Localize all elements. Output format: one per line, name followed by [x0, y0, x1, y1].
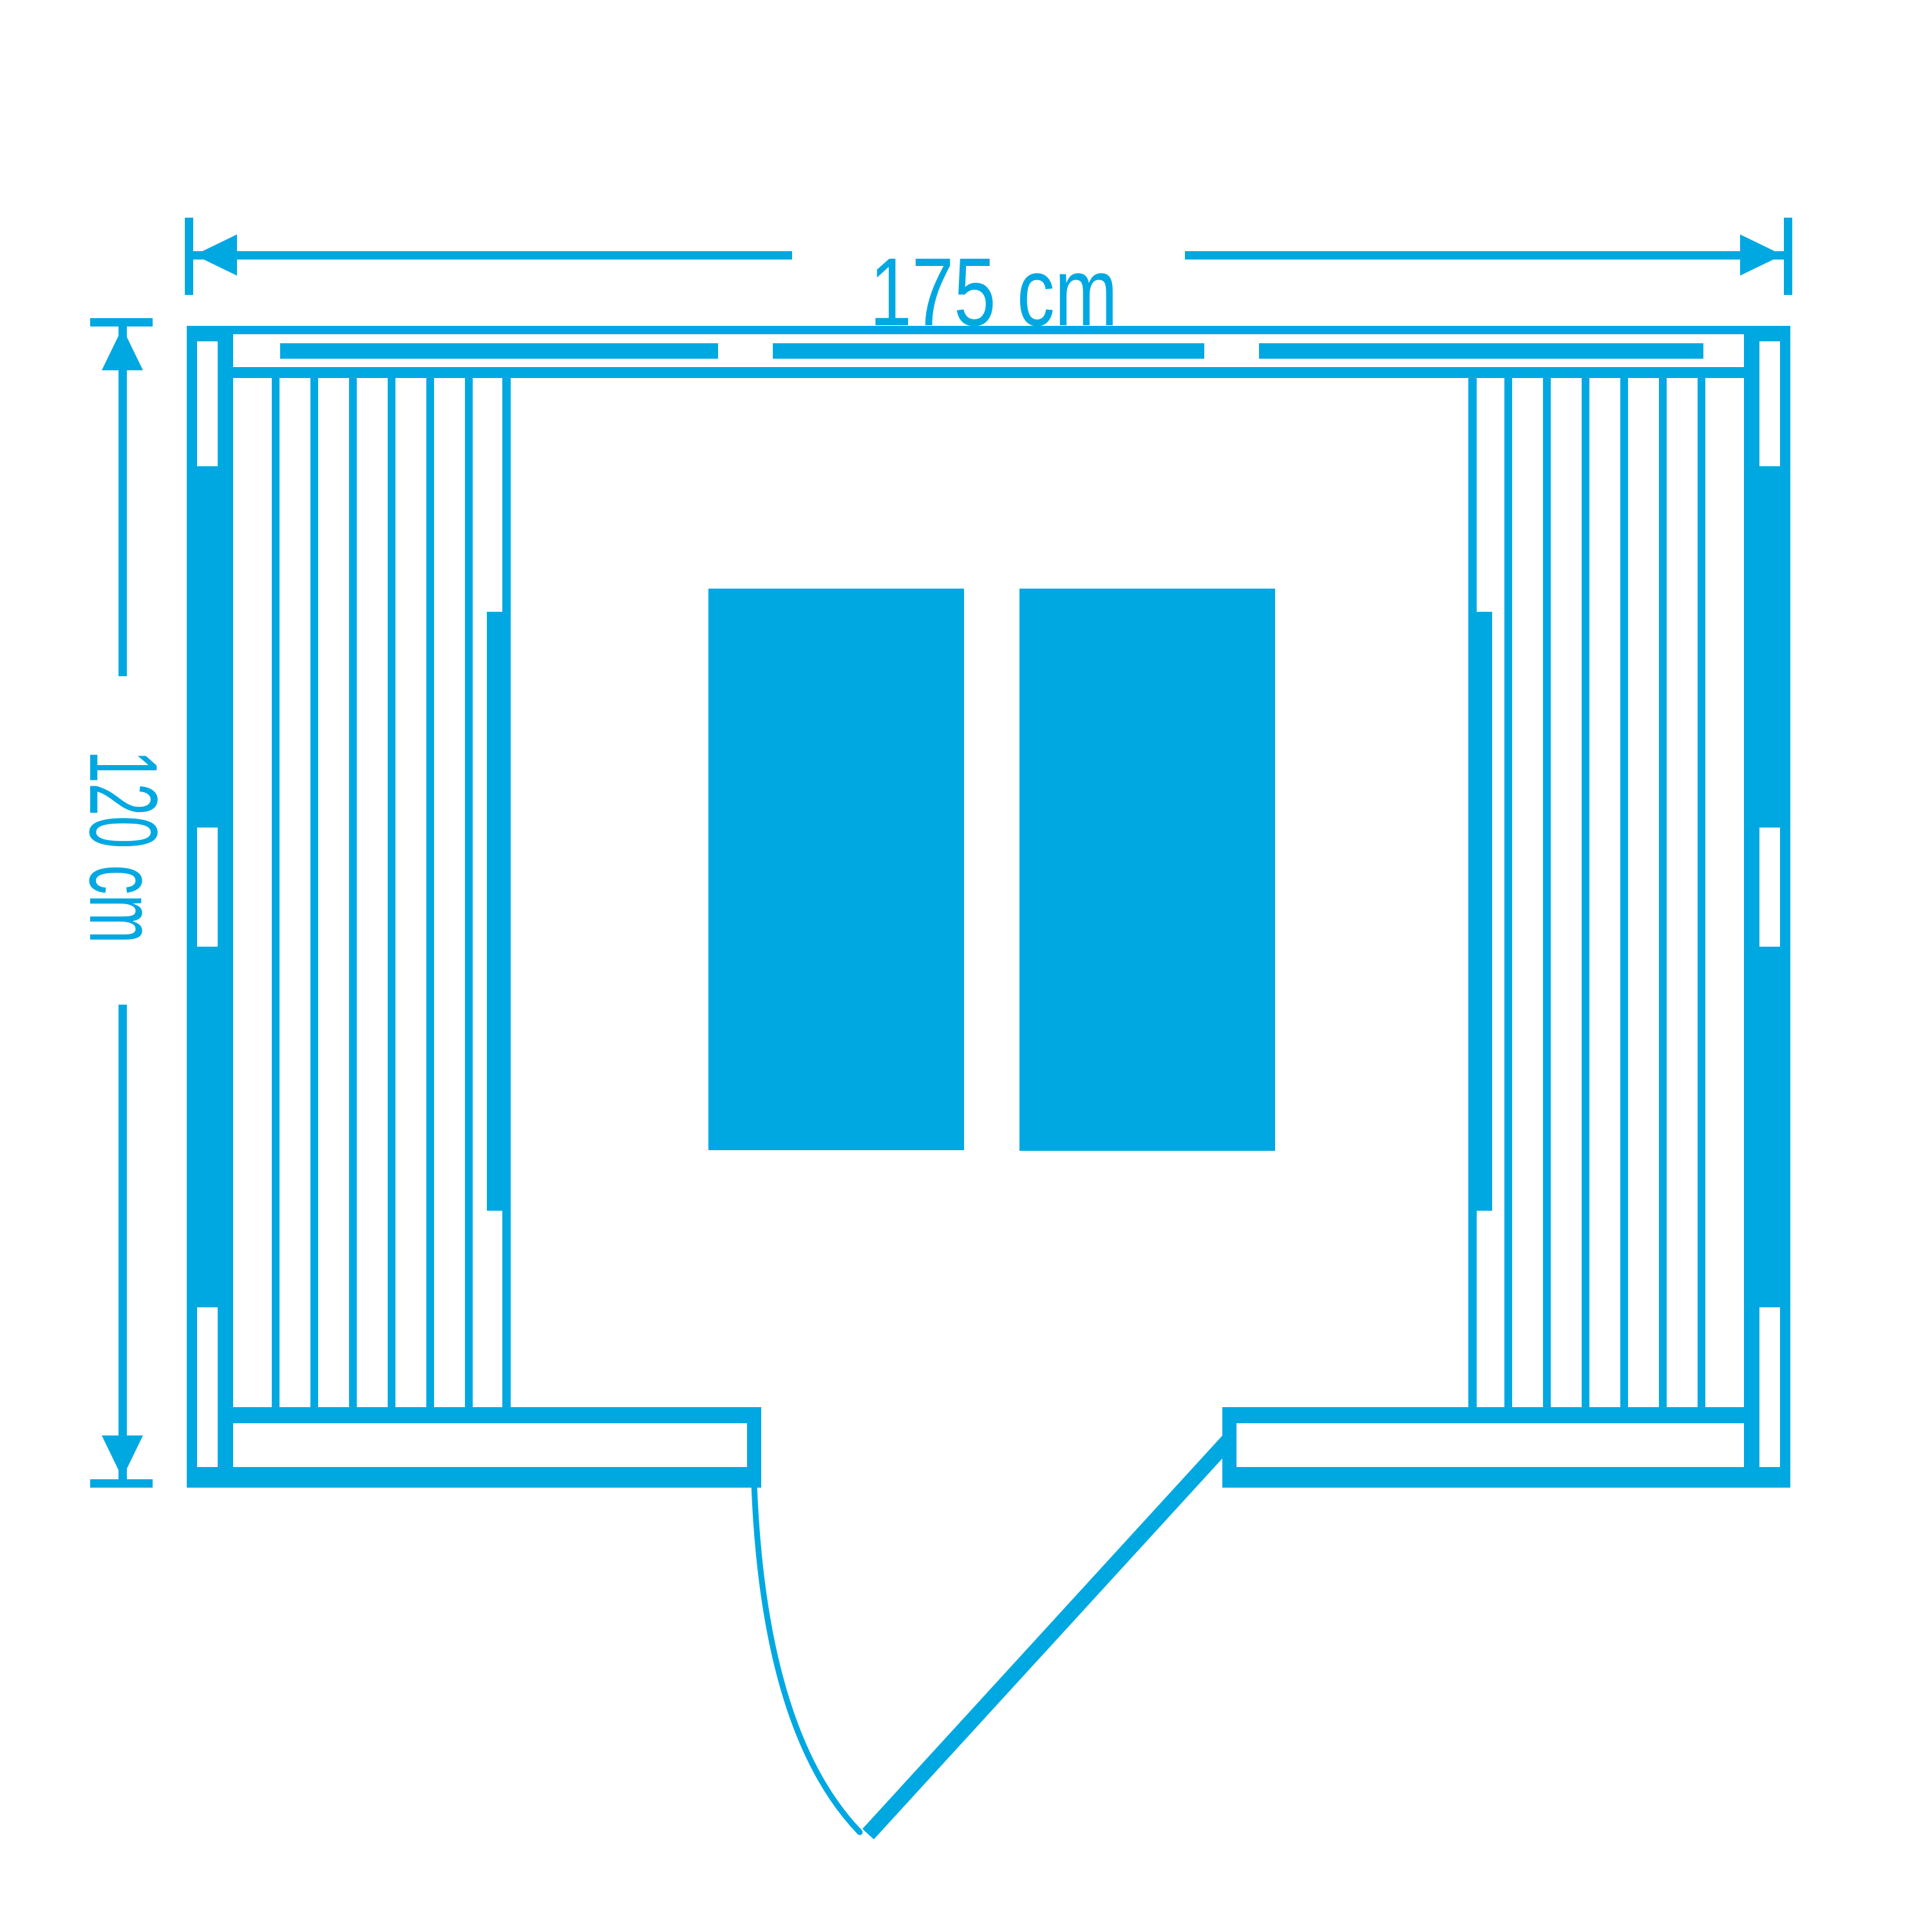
- arrow-up-icon: [102, 328, 143, 370]
- bottom-wall-inner-line-left: [233, 1407, 747, 1423]
- right-heater-panel: [1468, 378, 1705, 1407]
- arrow-left-icon: [194, 234, 237, 276]
- arrow-right-icon: [1740, 234, 1783, 276]
- left-panel-stripe: [426, 378, 434, 1407]
- right-bench-cushion: [1019, 589, 1275, 1151]
- left-panel-front-edge: [502, 378, 511, 1407]
- left-panel-stripe: [272, 378, 279, 1407]
- top-wall-panel-left: [280, 343, 718, 359]
- right-wall-joint-slot-top: [1759, 341, 1780, 466]
- top-wall-inner-line: [218, 367, 1765, 378]
- sauna-floor-plan: 175 cm 120 cm: [0, 0, 1932, 1932]
- sauna-floor-plan-page: 175 cm 120 cm: [0, 0, 1932, 1932]
- right-panel-front-edge: [1468, 378, 1477, 1407]
- depth-dim-line-top-segment: [118, 327, 127, 676]
- left-wall-joint-slot-middle: [197, 828, 218, 947]
- outer-wall-bottom-right-segment: [1222, 1467, 1790, 1488]
- right-wall-joint-slot-bottom: [1759, 1307, 1780, 1467]
- arrow-down-icon: [102, 1435, 143, 1478]
- right-bench-front-edge: [1477, 612, 1492, 1211]
- left-panel-stripe: [349, 378, 357, 1407]
- left-bench-cushion: [708, 589, 964, 1150]
- top-wall-panel-right: [1259, 343, 1703, 359]
- bench-cushions: [708, 589, 1275, 1151]
- door-jamb-left: [747, 1407, 761, 1488]
- right-wall-joint-slot-middle: [1759, 828, 1780, 947]
- door: [754, 1439, 1229, 1834]
- door-leaf: [868, 1439, 1229, 1834]
- depth-dim-tick-top: [90, 318, 153, 327]
- left-panel-stripe: [465, 378, 473, 1407]
- left-wall: [195, 334, 233, 1472]
- right-panel-stripe: [1582, 378, 1589, 1407]
- left-panel-stripe: [310, 378, 318, 1407]
- outer-wall-left-edge: [187, 326, 195, 1488]
- depth-dimension-label: 120 cm: [70, 750, 178, 943]
- left-bench-front-edge: [487, 612, 502, 1211]
- right-panel-stripe: [1543, 378, 1551, 1407]
- width-dim-tick-left: [185, 218, 193, 295]
- width-dim-line-right-segment: [1185, 251, 1784, 260]
- right-panel-stripe: [1620, 378, 1628, 1407]
- top-wall-panel-center: [773, 343, 1204, 359]
- right-panel-stripe: [1504, 378, 1512, 1407]
- right-panel-stripe: [1659, 378, 1667, 1407]
- depth-dim-line-bottom-segment: [118, 1005, 127, 1479]
- depth-dim-tick-bottom: [90, 1479, 153, 1488]
- left-wall-joint-slot-bottom: [197, 1307, 218, 1467]
- bottom-wall-inner-line-right: [1236, 1407, 1744, 1423]
- outer-wall-bottom-left-segment: [187, 1467, 761, 1488]
- depth-dimension: 120 cm: [70, 318, 178, 1488]
- left-wall-joint-slot-top: [197, 341, 218, 466]
- right-wall: [1744, 334, 1782, 1472]
- outer-wall-right-edge: [1782, 326, 1790, 1488]
- right-panel-stripe: [1698, 378, 1705, 1407]
- left-heater-panel: [272, 378, 511, 1407]
- outer-wall-top-edge: [187, 326, 1790, 334]
- top-wall: [218, 343, 1765, 378]
- left-panel-stripe: [388, 378, 395, 1407]
- width-dim-line-left-segment: [193, 251, 792, 260]
- width-dim-tick-right: [1784, 218, 1792, 295]
- door-swing-arc: [754, 1484, 860, 1832]
